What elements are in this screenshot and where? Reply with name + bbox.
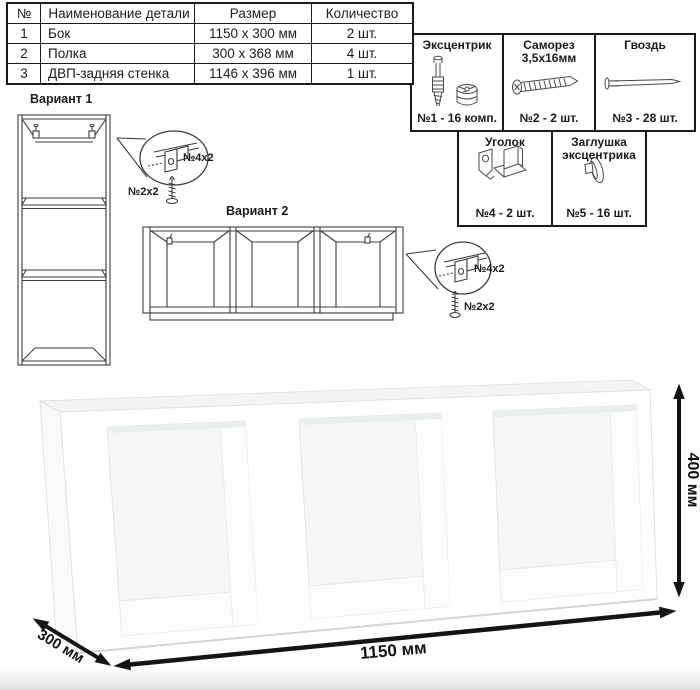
part-name: Полка — [41, 44, 195, 64]
col-header-name: Наименование детали — [41, 3, 195, 24]
hardware-name-line2: эксцентрика — [553, 149, 645, 162]
hardware-cell-cam: Эксцентрик №1 - 16 комп. — [410, 33, 504, 132]
col-header-number: № — [7, 3, 41, 24]
hardware-count: №1 - 16 комп. — [412, 111, 502, 125]
hardware-count: №3 - 28 шт. — [596, 111, 694, 125]
hardware-count: №5 - 16 шт. — [553, 206, 645, 220]
hardware-count: №4 - 2 шт. — [459, 206, 551, 220]
bracket-icon — [167, 233, 370, 244]
shelf-3d-render — [40, 380, 657, 653]
variant1-shelf-drawing — [18, 115, 208, 365]
hardware-count: №2 - 2 шт. — [504, 111, 594, 125]
screw-detail-icon — [167, 176, 178, 204]
part-size: 1150 x 300 мм — [195, 24, 312, 44]
screw-detail-icon — [450, 291, 460, 318]
dimension-width-label: 1150 мм — [359, 638, 427, 664]
col-header-size: Размер — [195, 3, 312, 24]
hardware-cell-screw: Саморез 3,5х16мм №2 - 2 шт. — [502, 33, 596, 132]
variant2-shelf-drawing — [143, 227, 491, 320]
part-quantity: 2 шт. — [312, 24, 414, 44]
variant1-screw-label: №2х2 — [128, 186, 159, 198]
hardware-name: Гвоздь — [596, 39, 694, 52]
variant1-bracket-label: №4х2 — [183, 152, 214, 164]
dimension-arrows — [34, 385, 684, 670]
part-size: 1146 x 396 мм — [195, 64, 312, 85]
parts-table: № Наименование детали Размер Количество … — [6, 2, 414, 85]
part-name: ДВП-задняя стенка — [41, 64, 195, 85]
hardware-name: Уголок — [459, 136, 551, 149]
part-number: 2 — [7, 44, 41, 64]
dimension-height-label: 400 мм — [683, 445, 700, 515]
bracket-icon — [33, 125, 95, 139]
table-row: 1 Бок 1150 x 300 мм 2 шт. — [7, 24, 413, 44]
assembly-instruction-page: № Наименование детали Размер Количество … — [0, 0, 700, 690]
variant2-bracket-label: №4х2 — [474, 263, 505, 275]
part-number: 1 — [7, 24, 41, 44]
hardware-cell-cap: Заглушка эксцентрика №5 - 16 шт. — [551, 130, 647, 227]
floor-shadow — [0, 668, 700, 690]
table-row: 3 ДВП-задняя стенка 1146 x 396 мм 1 шт. — [7, 64, 413, 85]
table-row: 2 Полка 300 x 368 мм 4 шт. — [7, 44, 413, 64]
variant2-screw-label: №2х2 — [464, 301, 495, 313]
dimension-depth-label: 300 мм — [34, 626, 87, 667]
part-name: Бок — [41, 24, 195, 44]
part-size: 300 x 368 мм — [195, 44, 312, 64]
part-quantity: 1 шт. — [312, 64, 414, 85]
parts-table-header: № Наименование детали Размер Количество — [7, 3, 413, 24]
hardware-cell-bracket: Уголок №4 - 2 шт. — [457, 130, 553, 227]
hardware-name-line2: 3,5х16мм — [504, 52, 594, 65]
part-number: 3 — [7, 64, 41, 85]
hardware-name: Эксцентрик — [412, 39, 502, 52]
col-header-quantity: Количество — [312, 3, 414, 24]
part-quantity: 4 шт. — [312, 44, 414, 64]
variant1-title: Вариант 1 — [30, 92, 92, 106]
hardware-cell-nail: Гвоздь №3 - 28 шт. — [594, 33, 696, 132]
variant2-title: Вариант 2 — [226, 204, 288, 218]
